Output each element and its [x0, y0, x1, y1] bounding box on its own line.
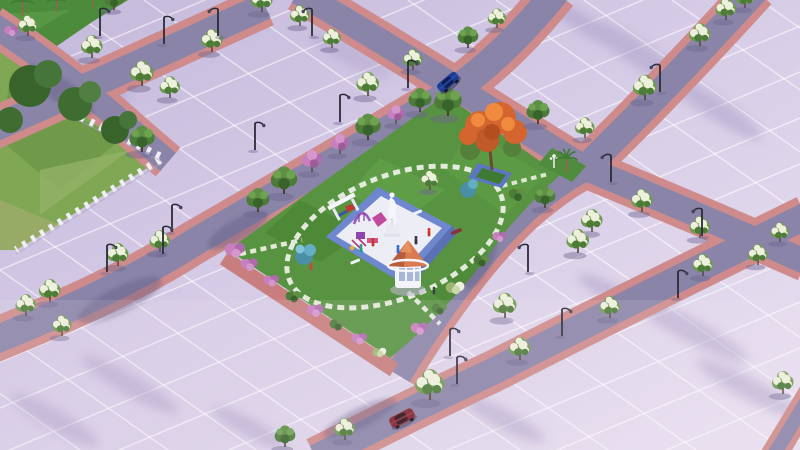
aerial-render-viewport	[0, 0, 800, 450]
light-haze	[0, 300, 800, 450]
township-render	[0, 0, 800, 450]
